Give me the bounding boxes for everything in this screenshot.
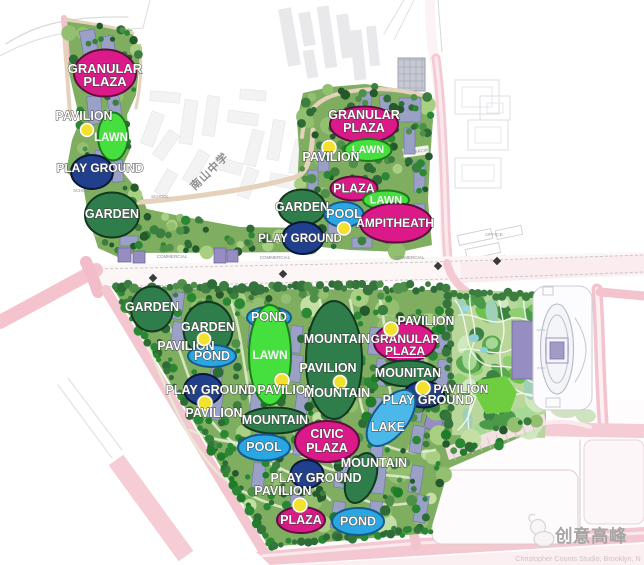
svg-text:PLAZA: PLAZA <box>306 441 348 455</box>
svg-text:PAVILION: PAVILION <box>397 314 454 328</box>
svg-text:PAVILION: PAVILION <box>299 361 356 375</box>
svg-text:PLAY GROUND: PLAY GROUND <box>56 161 144 175</box>
svg-text:PLAZA: PLAZA <box>83 74 127 89</box>
svg-text:GARDEN: GARDEN <box>125 300 179 314</box>
svg-text:LAWN: LAWN <box>252 348 287 362</box>
svg-text:GARDEN: GARDEN <box>275 200 329 214</box>
svg-text:GRANULAR: GRANULAR <box>371 332 440 346</box>
svg-text:PAVILION: PAVILION <box>302 150 359 164</box>
svg-text:PLAZA: PLAZA <box>343 121 385 135</box>
svg-text:MOUNTAIN: MOUNTAIN <box>304 332 370 346</box>
svg-text:Christopher Counts Studio, Bro: Christopher Counts Studio, Brooklyn, N <box>515 554 640 563</box>
svg-text:POOL: POOL <box>246 440 282 454</box>
svg-text:GRANULAR: GRANULAR <box>68 61 143 76</box>
svg-text:PAVILION: PAVILION <box>434 382 489 396</box>
svg-text:OFFICE: OFFICE <box>485 232 503 238</box>
svg-text:COMMERCIAL: COMMERCIAL <box>394 255 425 260</box>
svg-text:POND: POND <box>340 515 376 529</box>
svg-text:PLAZA: PLAZA <box>333 182 375 196</box>
svg-text:POND: POND <box>251 310 287 324</box>
svg-text:PAVILION: PAVILION <box>55 109 112 123</box>
svg-text:PLAY GROUND: PLAY GROUND <box>271 471 362 485</box>
svg-text:MOUNTAIN: MOUNTAIN <box>304 386 370 400</box>
svg-text:LAWN: LAWN <box>370 195 402 207</box>
svg-text:GARDEN: GARDEN <box>181 320 235 334</box>
svg-text:GARDEN: GARDEN <box>85 207 139 221</box>
svg-text:MOUNTAIN: MOUNTAIN <box>242 413 308 427</box>
svg-text:PLAY GROUND: PLAY GROUND <box>166 383 257 397</box>
svg-text:CIVIC: CIVIC <box>310 427 343 441</box>
svg-text:COMMERCIAL: COMMERCIAL <box>157 254 188 259</box>
svg-text:GRANULAR: GRANULAR <box>328 108 400 122</box>
svg-text:PLAY GROUND: PLAY GROUND <box>258 233 342 245</box>
svg-text:PLAZA: PLAZA <box>280 513 322 527</box>
svg-text:MOUNITAN: MOUNITAN <box>375 366 441 380</box>
svg-text:LAWN: LAWN <box>94 132 128 144</box>
svg-text:MOUNTAIN: MOUNTAIN <box>341 456 407 470</box>
svg-text:AMPITHEATH: AMPITHEATH <box>356 216 434 230</box>
svg-text:创意高峰: 创意高峰 <box>554 526 627 546</box>
svg-text:POND: POND <box>194 349 230 363</box>
svg-text:LAKE: LAKE <box>371 420 405 434</box>
svg-text:SCHOOL: SCHOOL <box>151 194 169 199</box>
svg-text:PAVILION: PAVILION <box>254 484 311 498</box>
svg-text:PAVILION: PAVILION <box>185 406 242 420</box>
svg-text:PLAZA: PLAZA <box>385 344 425 358</box>
svg-text:COMMERCIAL: COMMERCIAL <box>260 255 291 260</box>
